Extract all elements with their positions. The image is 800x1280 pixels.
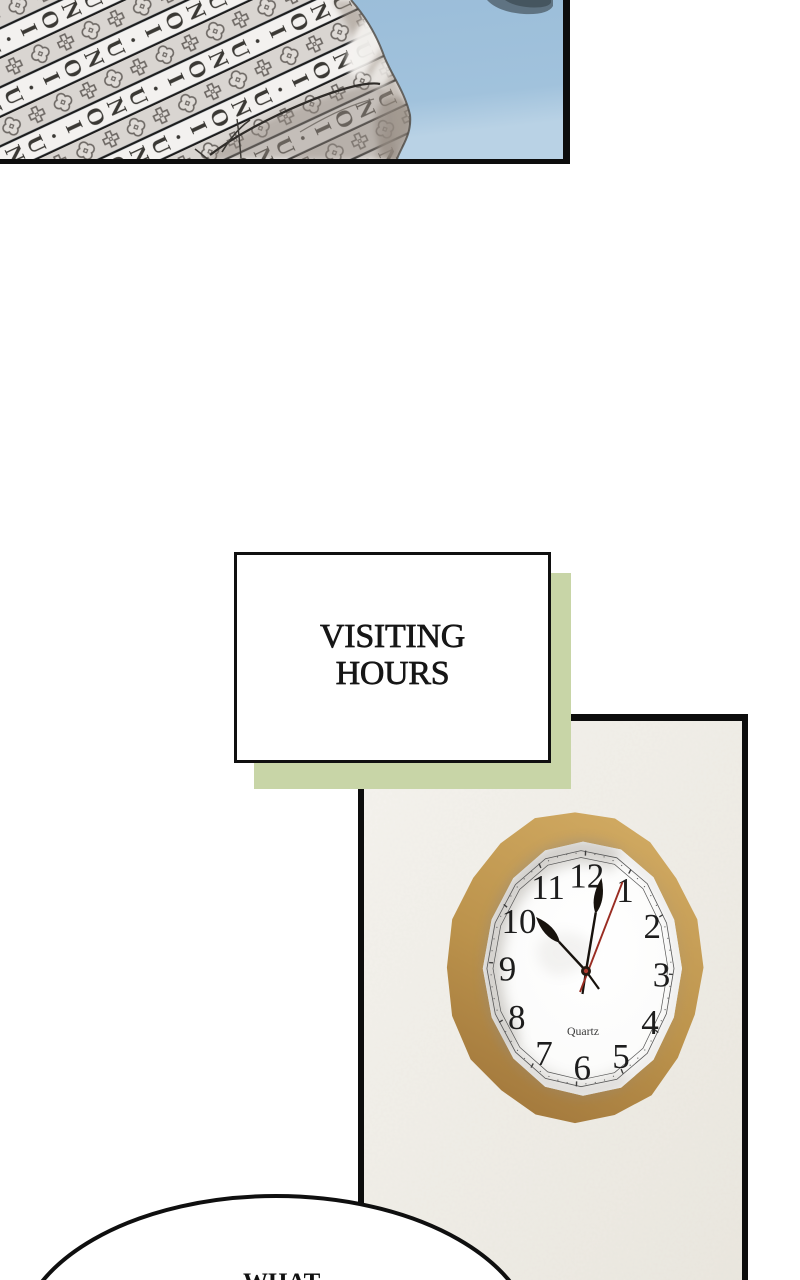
svg-text:10: 10 bbox=[502, 902, 537, 941]
svg-text:2: 2 bbox=[644, 907, 662, 946]
svg-text:Quartz: Quartz bbox=[567, 1024, 599, 1038]
svg-text:6: 6 bbox=[573, 1048, 591, 1087]
svg-text:11: 11 bbox=[531, 868, 565, 907]
svg-text:3: 3 bbox=[653, 955, 671, 994]
svg-text:4: 4 bbox=[641, 1003, 659, 1042]
svg-text:5: 5 bbox=[612, 1037, 630, 1076]
svg-text:9: 9 bbox=[499, 950, 517, 989]
svg-text:8: 8 bbox=[508, 998, 526, 1037]
svg-text:7: 7 bbox=[535, 1034, 553, 1073]
